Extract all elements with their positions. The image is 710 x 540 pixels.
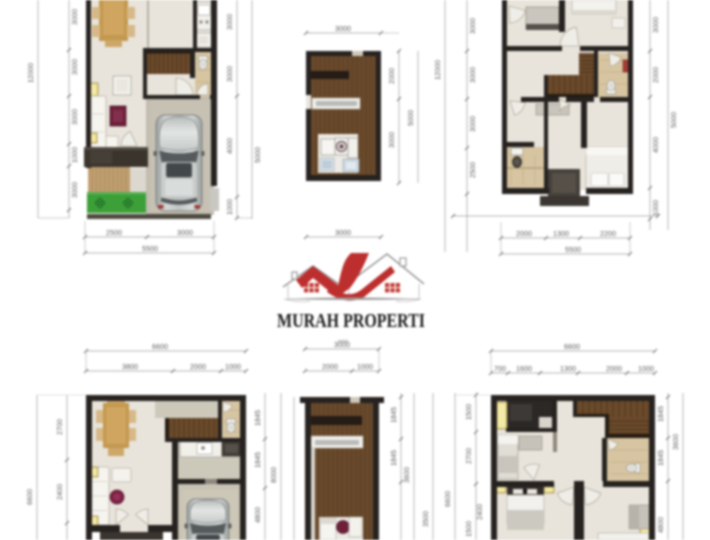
svg-text:6600: 6600 [152, 342, 168, 351]
svg-text:2000: 2000 [190, 362, 206, 371]
svg-text:1000: 1000 [651, 200, 660, 216]
svg-text:6600: 6600 [25, 489, 34, 505]
svg-text:5000: 5000 [669, 112, 678, 128]
svg-text:700: 700 [494, 364, 506, 373]
svg-text:2000: 2000 [322, 362, 338, 371]
svg-text:1500: 1500 [464, 521, 473, 537]
svg-text:8000: 8000 [269, 467, 278, 483]
svg-text:2700: 2700 [464, 448, 473, 464]
svg-text:3000: 3000 [651, 17, 660, 33]
svg-text:1845: 1845 [389, 407, 398, 423]
svg-text:3000: 3000 [70, 109, 79, 125]
svg-text:12000: 12000 [26, 63, 35, 83]
svg-text:3000: 3000 [70, 59, 79, 75]
svg-text:3000: 3000 [468, 67, 477, 83]
svg-text:1500: 1500 [464, 404, 473, 420]
svg-text:3000: 3000 [334, 340, 350, 349]
svg-text:4800: 4800 [656, 517, 665, 533]
svg-text:3000: 3000 [225, 14, 234, 30]
svg-text:1000: 1000 [70, 147, 79, 163]
svg-text:3000: 3000 [177, 228, 193, 237]
svg-text:3000: 3000 [335, 228, 351, 237]
svg-text:3600: 3600 [402, 467, 411, 483]
svg-text:1845: 1845 [656, 450, 665, 466]
svg-text:1000: 1000 [225, 362, 241, 371]
svg-text:1845: 1845 [389, 450, 398, 466]
svg-text:3800: 3800 [122, 362, 138, 371]
svg-text:2000: 2000 [387, 68, 396, 84]
svg-text:1000: 1000 [638, 364, 654, 373]
svg-text:12000: 12000 [433, 60, 442, 80]
svg-text:1300: 1300 [553, 229, 569, 238]
svg-text:2500: 2500 [468, 162, 477, 178]
svg-text:MURAH PROPERTI: MURAH PROPERTI [277, 310, 425, 332]
svg-text:4000: 4000 [651, 137, 660, 153]
svg-text:4800: 4800 [253, 507, 262, 523]
svg-text:1600: 1600 [516, 364, 532, 373]
svg-text:1000: 1000 [225, 199, 234, 215]
svg-text:3000: 3000 [468, 18, 477, 34]
svg-text:3000: 3000 [70, 182, 79, 198]
svg-text:3600: 3600 [671, 434, 680, 450]
svg-text:2000: 2000 [516, 229, 532, 238]
svg-text:2400: 2400 [475, 504, 484, 520]
svg-text:5500: 5500 [142, 244, 158, 253]
svg-text:3000: 3000 [225, 66, 234, 82]
svg-text:2400: 2400 [55, 484, 64, 500]
svg-text:1845: 1845 [253, 452, 262, 468]
svg-text:2700: 2700 [55, 419, 64, 435]
svg-text:2200: 2200 [600, 229, 616, 238]
svg-text:1000: 1000 [357, 362, 373, 371]
svg-text:3500: 3500 [421, 511, 430, 527]
svg-text:3000: 3000 [335, 24, 351, 33]
svg-text:1300: 1300 [560, 364, 576, 373]
svg-text:2000: 2000 [606, 364, 622, 373]
svg-text:3000: 3000 [70, 9, 79, 25]
svg-text:6600: 6600 [443, 491, 452, 507]
svg-text:1845: 1845 [253, 410, 262, 426]
svg-text:4000: 4000 [225, 138, 234, 154]
svg-text:3000: 3000 [387, 132, 396, 148]
svg-text:5000: 5000 [253, 147, 262, 163]
svg-text:5000: 5000 [406, 110, 415, 126]
svg-text:2500: 2500 [106, 228, 122, 237]
svg-text:6600: 6600 [564, 342, 580, 351]
svg-text:3000: 3000 [468, 116, 477, 132]
svg-text:5500: 5500 [565, 245, 581, 254]
svg-text:1845: 1845 [656, 406, 665, 422]
svg-text:2000: 2000 [651, 67, 660, 83]
